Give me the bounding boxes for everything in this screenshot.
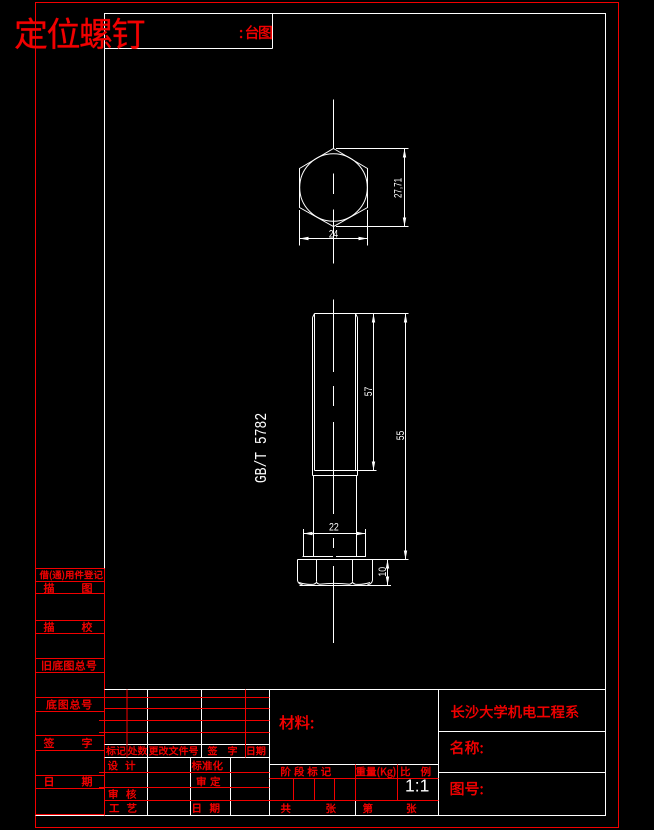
svg-text:55: 55: [395, 430, 407, 440]
svg-text:24: 24: [329, 228, 339, 240]
svg-text:1:1: 1:1: [405, 776, 429, 796]
svg-text:22: 22: [329, 522, 339, 534]
svg-text:27,71: 27,71: [392, 178, 405, 198]
svg-text:10: 10: [377, 567, 389, 577]
svg-text:GB/T 5782: GB/T 5782: [254, 413, 272, 483]
svg-text:57: 57: [363, 387, 375, 397]
